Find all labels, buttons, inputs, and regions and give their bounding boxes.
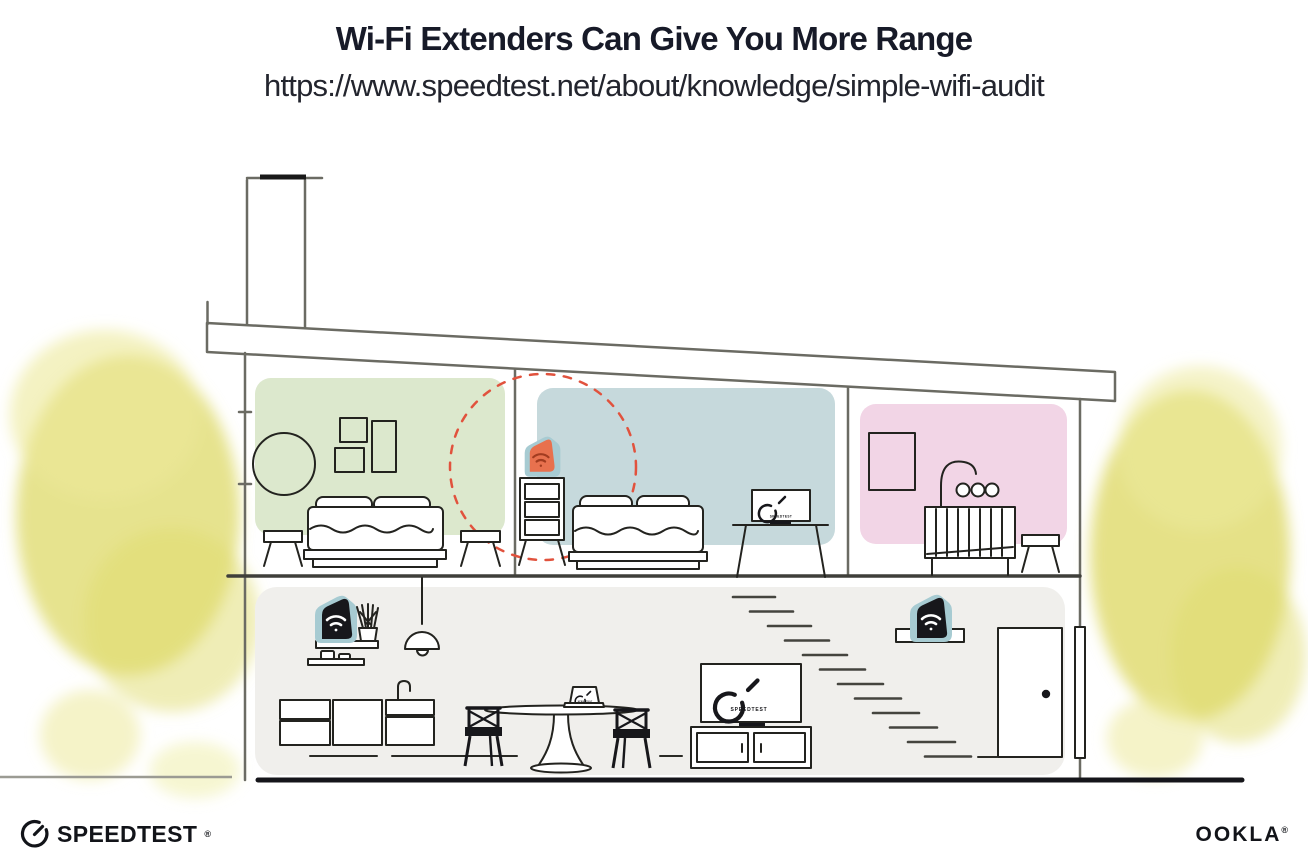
dresser (519, 478, 565, 565)
house-illustration: SPEEDTEST (0, 0, 1308, 861)
door-knob (1042, 690, 1050, 698)
ookla-logo: OOKLA® (1196, 823, 1290, 847)
living-room-tv-label: SPEEDTEST (731, 707, 768, 713)
stool (1022, 535, 1059, 572)
wall-edge-trim (1075, 627, 1085, 758)
bed (569, 496, 707, 569)
nightstand (264, 531, 302, 566)
infographic-page: Wi-Fi Extenders Can Give You More Range … (0, 0, 1308, 861)
crib (925, 507, 1015, 575)
speedtest-logo: SPEEDTEST® (20, 819, 211, 849)
chimney (247, 177, 322, 329)
living-room-tv: SPEEDTEST (701, 664, 801, 727)
front-door (998, 628, 1062, 757)
nightstand (461, 531, 500, 566)
bed (304, 497, 446, 567)
foliage-left (10, 330, 260, 798)
tv-console (691, 727, 811, 768)
speedtest-wordmark: SPEEDTEST (57, 821, 197, 848)
bedroom-tv-label: SPEEDTEST (770, 515, 793, 519)
speedtest-trademark: ® (204, 829, 211, 839)
ookla-trademark: ® (1281, 825, 1290, 835)
foliage-right (1090, 366, 1306, 778)
ookla-wordmark: OOKLA (1196, 823, 1282, 846)
speedtest-gauge-icon (20, 819, 50, 849)
lower-shelf (308, 659, 364, 665)
wifi-extender-upstairs (525, 437, 561, 477)
